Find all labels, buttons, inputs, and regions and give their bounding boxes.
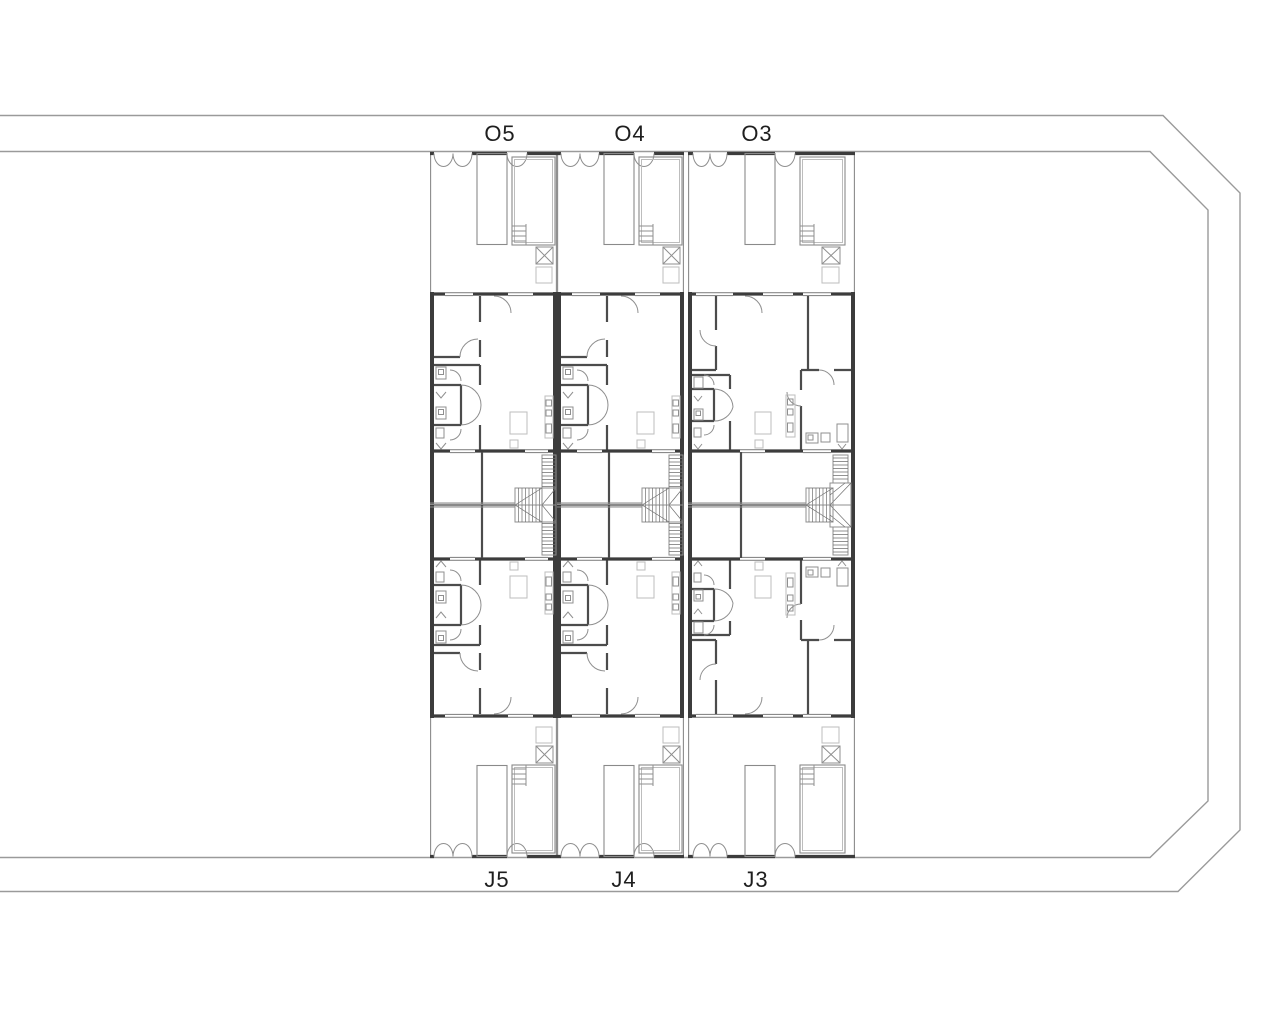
unit-o3 <box>688 152 855 506</box>
label-o4: O4 <box>614 121 645 146</box>
unit-labels-bottom: J5 J4 J3 <box>484 867 768 892</box>
unit-o4 <box>557 152 684 506</box>
unit-j4 <box>557 504 684 858</box>
floor-plan-page: O5 O4 O3 J5 J4 J3 <box>0 0 1280 1024</box>
label-o5: O5 <box>484 121 515 146</box>
label-j5: J5 <box>484 867 509 892</box>
floor-plan-canvas: O5 O4 O3 J5 J4 J3 <box>0 0 1280 1024</box>
unit-j3 <box>688 504 855 858</box>
label-j3: J3 <box>743 867 768 892</box>
unit-o5 <box>430 152 557 506</box>
label-j4: J4 <box>611 867 636 892</box>
unit-j5 <box>430 504 557 858</box>
label-o3: O3 <box>741 121 772 146</box>
unit-labels-top: O5 O4 O3 <box>484 121 772 146</box>
